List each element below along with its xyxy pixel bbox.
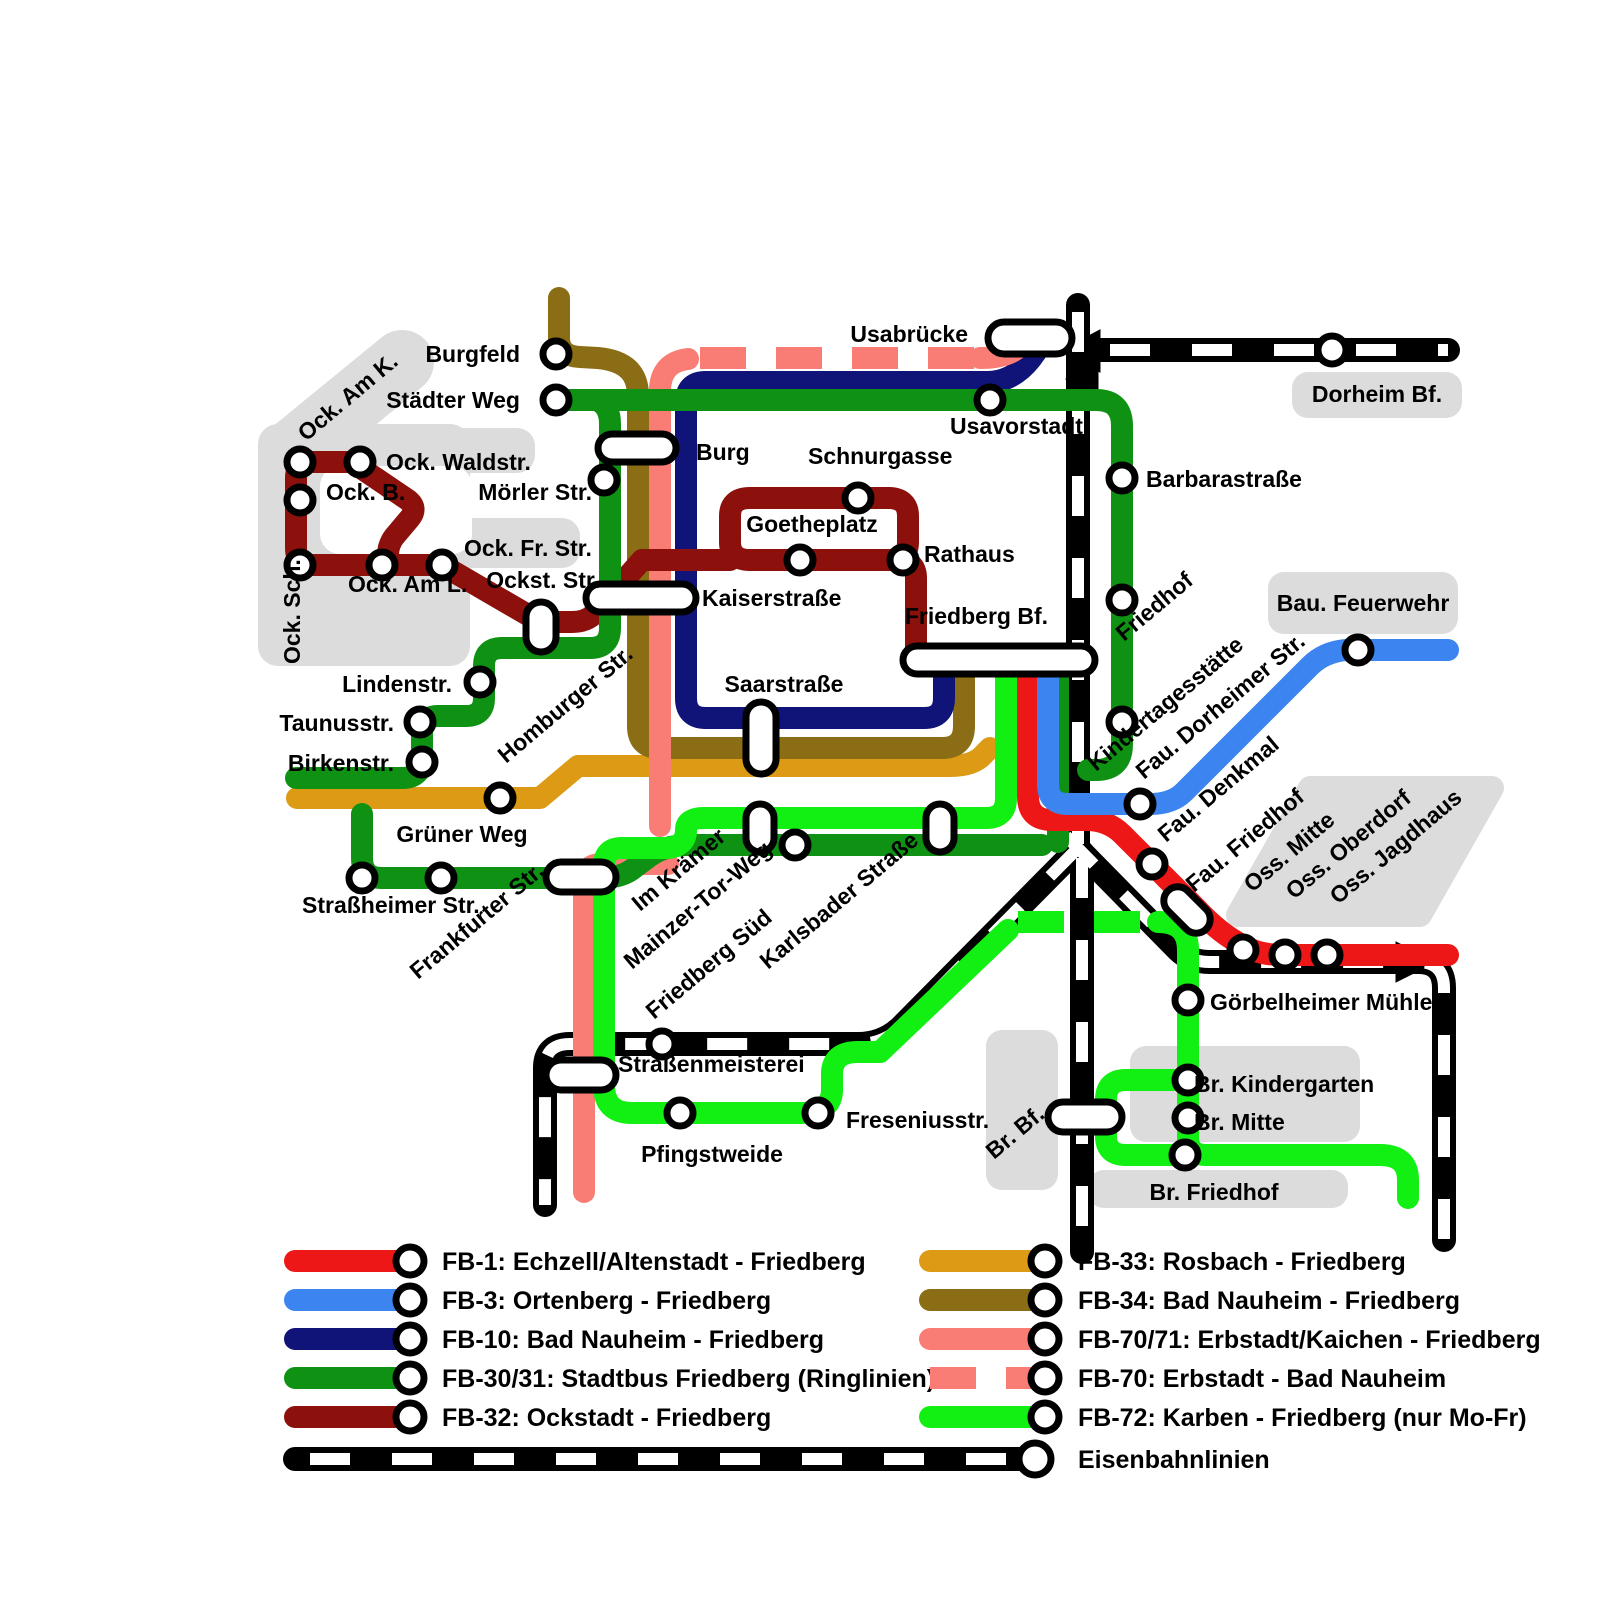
legend-item-fb3: FB-3: Ortenberg - Friedberg <box>295 1286 771 1315</box>
label-ock-b: Ock. B. <box>326 479 405 505</box>
stop-freseniusstr <box>805 1100 831 1126</box>
label-kaiserstrasse: Kaiserstraße <box>702 585 841 611</box>
station-pill-burg <box>598 434 676 462</box>
label-rathaus: Rathaus <box>924 541 1015 567</box>
label-br-friedhof: Br. Friedhof <box>1149 1179 1278 1205</box>
stop-taunusstr <box>407 709 433 735</box>
label-gruener-weg: Grüner Weg <box>396 821 527 847</box>
label-birkenstr: Birkenstr. <box>288 750 394 776</box>
legend-item-fb7071: FB-70/71: Erbstadt/Kaichen - Friedberg <box>930 1325 1541 1354</box>
station-pill-usabruecke <box>988 322 1072 354</box>
station-pill-karlsbader <box>926 804 954 852</box>
label-ock-fr-str: Ock. Fr. Str. <box>464 535 592 561</box>
legend-label-fb33: FB-33: Rosbach - Friedberg <box>1078 1248 1406 1276</box>
label-moerler-str: Mörler Str. <box>478 479 592 505</box>
station-pill-frankfurter-str <box>546 862 616 892</box>
legend-item-fb3031: FB-30/31: Stadtbus Friedberg (Ringlinien… <box>295 1364 935 1393</box>
stop-pfingstweide <box>667 1100 693 1126</box>
station-pill-kaiserstrasse <box>586 584 696 612</box>
stop-barbarastrasse <box>1109 465 1135 491</box>
legend-item-fb72: FB-72: Karben - Friedberg (nur Mo-Fr) <box>930 1403 1527 1432</box>
stop-goerbelheimer-muehle <box>1175 987 1201 1013</box>
stop-goetheplatz <box>787 547 813 573</box>
legend-stop-icon <box>396 1325 424 1353</box>
legend-label-fb70: FB-70: Erbstadt - Bad Nauheim <box>1078 1365 1446 1393</box>
stop-rathaus <box>890 547 916 573</box>
legend-label-fb3: FB-3: Ortenberg - Friedberg <box>442 1287 771 1315</box>
legend-stop-icon <box>396 1247 424 1275</box>
legend-stop-icon <box>396 1364 424 1392</box>
station-pill-ockst-str <box>526 602 556 652</box>
legend: FB-1: Echzell/Altenstadt - Friedberg FB-… <box>295 1247 1541 1475</box>
label-goetheplatz: Goetheplatz <box>746 511 878 537</box>
label-br-kindergarten: Br. Kindergarten <box>1194 1071 1374 1097</box>
stop-birkenstr <box>409 749 435 775</box>
label-lindenstr: Lindenstr. <box>342 671 452 697</box>
label-homburger-str: Homburger Str. <box>493 640 638 768</box>
label-bau-feuerwehr: Bau. Feuerwehr <box>1277 590 1450 616</box>
legend-label-fb7071: FB-70/71: Erbstadt/Kaichen - Friedberg <box>1078 1326 1541 1354</box>
label-burg: Burg <box>696 439 750 465</box>
label-saarstrasse: Saarstraße <box>725 671 844 697</box>
legend-item-fb34: FB-34: Bad Nauheim - Friedberg <box>930 1286 1460 1315</box>
stop-ock-waldstr <box>347 449 373 475</box>
legend-stop-icon <box>1019 1443 1051 1475</box>
station-pill-br-bf <box>1048 1102 1122 1132</box>
stop-fb33-gruener-weg <box>487 785 513 811</box>
stop-staedter-weg <box>543 387 569 413</box>
legend-label-fb34: FB-34: Bad Nauheim - Friedberg <box>1078 1287 1460 1315</box>
transit-map-page: Burgfeld Städter Weg Ock. Am K. Ock. Wal… <box>0 0 1600 1600</box>
stop-fau-denkmal <box>1139 851 1165 877</box>
label-ock-waldstr: Ock. Waldstr. <box>386 449 531 475</box>
station-pill-strassenmeisterei <box>546 1060 616 1090</box>
legend-item-fb32: FB-32: Ockstadt - Friedberg <box>295 1403 771 1432</box>
label-strassheimer-str: Straßheimer Str. <box>302 892 480 918</box>
legend-label-railway: Eisenbahnlinien <box>1078 1446 1270 1474</box>
label-burgfeld: Burgfeld <box>425 341 520 367</box>
legend-label-fb32: FB-32: Ockstadt - Friedberg <box>442 1404 771 1432</box>
stop-burgfeld <box>543 341 569 367</box>
legend-stop-icon <box>1031 1286 1059 1314</box>
label-br-mitte: Br. Mitte <box>1194 1109 1285 1135</box>
legend-item-fb10: FB-10: Bad Nauheim - Friedberg <box>295 1325 824 1354</box>
label-staedter-weg: Städter Weg <box>386 387 520 413</box>
stop-strassheimer-str <box>349 865 375 891</box>
stop-br-friedhof <box>1172 1142 1198 1168</box>
label-ock-am-l: Ock. Am L. <box>348 571 467 597</box>
label-goerbelheimer-muehle: Görbelheimer Mühle <box>1210 989 1432 1015</box>
legend-item-railway: Eisenbahnlinien <box>295 1443 1270 1475</box>
legend-label-fb1: FB-1: Echzell/Altenstadt - Friedberg <box>442 1248 866 1276</box>
stop-ock-b <box>287 487 313 513</box>
stop-bau-feuerwehr <box>1345 637 1371 663</box>
label-friedberg-bf: Friedberg Bf. <box>905 603 1048 629</box>
stop-ock-am-k <box>287 449 313 475</box>
legend-item-fb33: FB-33: Rosbach - Friedberg <box>930 1247 1406 1276</box>
stop-oss-oberdorf <box>1272 942 1298 968</box>
legend-label-fb72: FB-72: Karben - Friedberg (nur Mo-Fr) <box>1078 1404 1527 1432</box>
stop-usavorstadt <box>977 387 1003 413</box>
legend-stop-icon <box>1031 1364 1059 1392</box>
label-pfingstweide: Pfingstweide <box>641 1141 783 1167</box>
stop-lindenstr <box>467 669 493 695</box>
label-taunusstr: Taunusstr. <box>279 710 394 736</box>
station-pill-friedberg-bf <box>903 646 1095 674</box>
legend-item-fb1: FB-1: Echzell/Altenstadt - Friedberg <box>295 1247 866 1276</box>
label-usabruecke: Usabrücke <box>850 321 968 347</box>
stop-schnurgasse <box>845 485 871 511</box>
label-dorheim-bf: Dorheim Bf. <box>1312 381 1442 407</box>
stop-mainzer-tor-weg <box>782 832 808 858</box>
label-usavorstadt: Usavorstadt <box>950 413 1083 439</box>
legend-stop-icon <box>1031 1247 1059 1275</box>
legend-stop-icon <box>396 1403 424 1431</box>
stop-moerler-str <box>591 467 617 493</box>
friedberg-bus-network-map: Burgfeld Städter Weg Ock. Am K. Ock. Wal… <box>0 0 1600 1600</box>
legend-stop-icon <box>1031 1325 1059 1353</box>
legend-label-fb3031: FB-30/31: Stadtbus Friedberg (Ringlinien… <box>442 1365 935 1393</box>
station-pill-saarstrasse <box>746 702 776 774</box>
stop-dorheim-bf <box>1318 336 1346 364</box>
label-strassenmeisterei: Straßenmeisterei <box>618 1051 805 1077</box>
label-freseniusstr: Freseniusstr. <box>846 1107 989 1133</box>
legend-stop-icon <box>1031 1403 1059 1431</box>
stop-fau-dorheimer-str <box>1127 791 1153 817</box>
stop-oss-jagdhaus <box>1314 942 1340 968</box>
stop-oss-mitte <box>1230 937 1256 963</box>
label-schnurgasse: Schnurgasse <box>808 443 952 469</box>
legend-stop-icon <box>396 1286 424 1314</box>
stop-gruener-weg <box>428 865 454 891</box>
label-barbarastrasse: Barbarastraße <box>1146 466 1302 492</box>
legend-item-fb70: FB-70: Erbstadt - Bad Nauheim <box>930 1364 1446 1393</box>
legend-label-fb10: FB-10: Bad Nauheim - Friedberg <box>442 1326 824 1354</box>
label-ock-sch: Ock. Sch. <box>279 559 305 664</box>
label-ockst-str: Ockst. Str. <box>486 567 600 593</box>
